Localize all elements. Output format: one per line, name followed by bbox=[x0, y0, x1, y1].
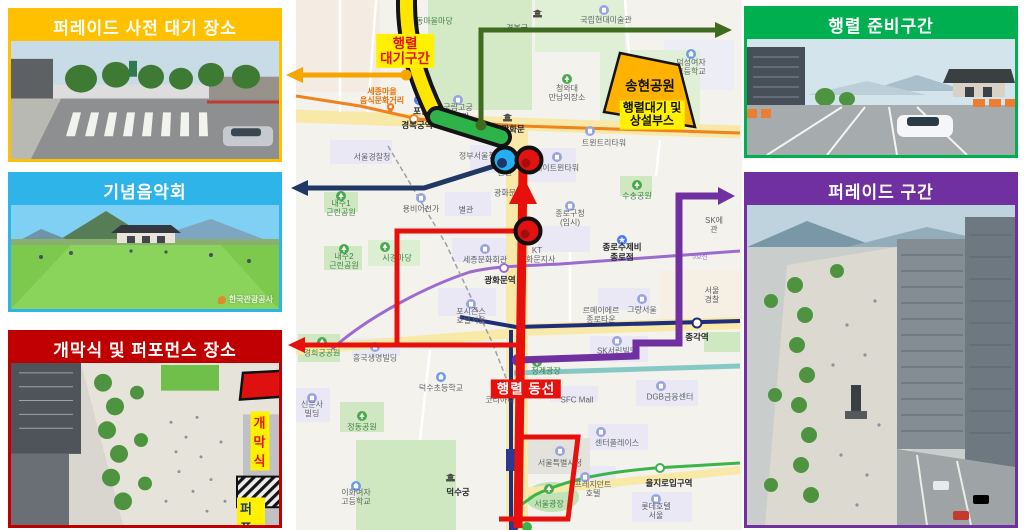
photo-parade-aerial bbox=[747, 205, 1015, 525]
parade-route-arrow bbox=[512, 187, 735, 366]
panel-title-pre-wait: 퍼레이드 사전 대기 장소 bbox=[11, 11, 279, 41]
infographic-stage: 통의동마을마당국립현대미술관경복궁청와대 만남의장소덕성여자 고등학교세종마을 … bbox=[0, 0, 1024, 530]
photo-opening-aerial: 개막식 퍼포먼스존 bbox=[11, 363, 279, 525]
panel-opening-performance: 개막식 및 퍼포먼스 장소 bbox=[8, 330, 282, 528]
opening-zone-shape bbox=[240, 371, 279, 400]
connector-opening-arrowhead bbox=[288, 337, 305, 353]
panel-prep-section: 행렬 준비구간 bbox=[744, 6, 1018, 158]
photo-watermark: 한국관광공사 bbox=[218, 294, 273, 305]
performance-zone-shape bbox=[237, 477, 279, 508]
prep-route-segment bbox=[437, 117, 501, 137]
connector-pre-wait-arrow bbox=[286, 67, 412, 83]
connector-concert-arrow bbox=[291, 163, 504, 196]
songhyeon-park-polygon bbox=[604, 53, 695, 127]
photo-pre-wait-street bbox=[11, 41, 279, 159]
photo-concert-plaza: 한국관광공사 bbox=[11, 205, 279, 309]
panel-title-parade: 퍼레이드 구간 bbox=[747, 175, 1015, 205]
route-box-sejong bbox=[397, 231, 527, 345]
panel-title-prep: 행렬 준비구간 bbox=[747, 9, 1015, 39]
statue-silhouette bbox=[851, 385, 861, 411]
photo-prep-road bbox=[747, 39, 1015, 155]
waiting-route bbox=[406, 0, 436, 116]
panel-title-opening: 개막식 및 퍼포먼스 장소 bbox=[11, 333, 279, 363]
connector-prep-arrow bbox=[476, 22, 733, 131]
watermark-logo-icon bbox=[218, 296, 226, 304]
panel-pre-wait-area: 퍼레이드 사전 대기 장소 bbox=[8, 8, 282, 162]
panel-concert: 기념음악회 한국관광공사 bbox=[8, 172, 282, 312]
panel-parade-section: 퍼레이드 구간 bbox=[744, 172, 1018, 528]
route-direction-arrow-up bbox=[509, 176, 537, 204]
panel-title-concert: 기념음악회 bbox=[11, 175, 279, 205]
route-box-cityhall bbox=[499, 437, 578, 519]
